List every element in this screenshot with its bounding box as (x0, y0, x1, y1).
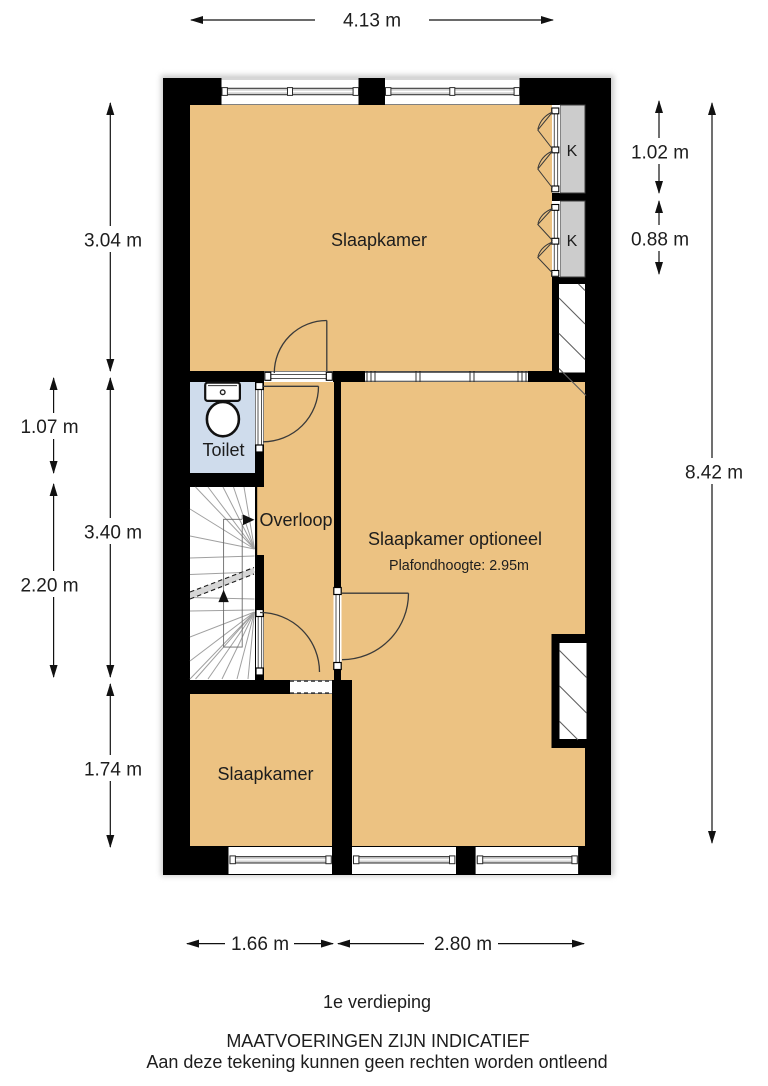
svg-text:2.80 m: 2.80 m (434, 934, 492, 955)
svg-text:3.04 m: 3.04 m (84, 231, 142, 252)
svg-text:1.66 m: 1.66 m (231, 934, 289, 955)
svg-text:Plafondhoogte: 2.95m: Plafondhoogte: 2.95m (389, 558, 529, 574)
svg-text:K: K (567, 143, 578, 160)
svg-text:3.40 m: 3.40 m (84, 523, 142, 544)
svg-text:2.20 m: 2.20 m (20, 576, 78, 597)
svg-text:1.02 m: 1.02 m (631, 143, 689, 164)
svg-text:4.13 m: 4.13 m (343, 11, 401, 32)
svg-text:1.07 m: 1.07 m (20, 417, 78, 438)
svg-text:0.88 m: 0.88 m (631, 230, 689, 251)
svg-text:1.74 m: 1.74 m (84, 760, 142, 781)
svg-text:MAATVOERINGEN ZIJN INDICATIEF: MAATVOERINGEN ZIJN INDICATIEF (226, 1031, 529, 1051)
svg-text:Toilet: Toilet (202, 440, 244, 460)
svg-text:Slaapkamer: Slaapkamer (217, 764, 313, 784)
svg-text:Overloop: Overloop (259, 510, 332, 530)
svg-text:Slaapkamer optioneel: Slaapkamer optioneel (368, 529, 542, 549)
svg-text:K: K (567, 233, 578, 250)
svg-text:Aan deze tekening kunnen geen: Aan deze tekening kunnen geen rechten wo… (146, 1052, 607, 1072)
svg-text:1e verdieping: 1e verdieping (323, 992, 431, 1012)
svg-text:8.42 m: 8.42 m (685, 463, 743, 484)
svg-text:Slaapkamer: Slaapkamer (331, 230, 427, 250)
